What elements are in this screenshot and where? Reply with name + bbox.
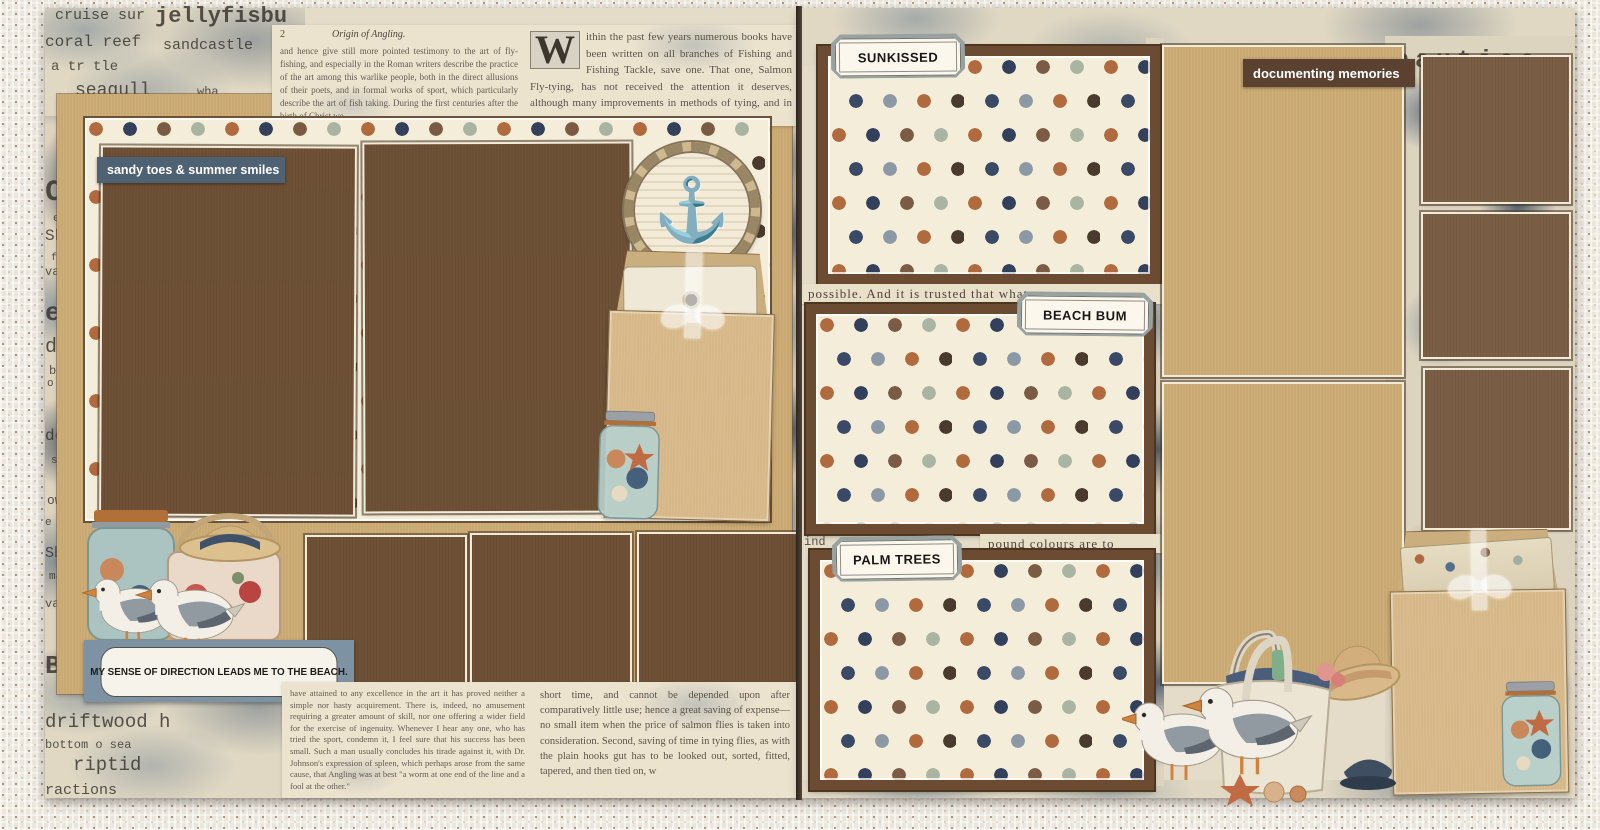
book-column-right: W ithin the past few years numerous book… [530,29,792,128]
beach-bum-plaque: BEACH BUM [1017,291,1153,336]
shell-jar-icon [591,408,666,526]
photo-square [1423,368,1571,530]
book-page-bottom: have attained to any excellence in the a… [282,682,799,798]
book-page-top: 2 Origin of Angling. and hence give stil… [272,25,799,126]
navy-hat-icon [1340,759,1396,790]
book-paragraph: have attained to any excellence in the a… [290,688,525,792]
book-heading: Origin of Angling. [332,29,405,40]
tan-journaling-block-top [1162,45,1404,377]
photo-square [637,532,801,696]
polka-dot-paper [816,314,1144,524]
palm-trees-label: PALM TREES [836,539,959,580]
scatter-word: driftwood h [45,713,170,732]
dot-panel-palm-trees [810,550,1154,790]
photo-square [1421,212,1571,359]
beach-bum-label: BEACH BUM [1021,295,1149,334]
beach-bum-label-text: BEACH BUM [1043,307,1127,323]
ribbon-knot [687,310,700,323]
ribbon-bow-icon [1447,569,1512,610]
photo-square [470,533,632,697]
scatter-word: cruise sur [55,8,145,23]
shell-jar-icon [1495,678,1567,791]
direction-sentiment-text: MY SENSE OF DIRECTION LEADS ME TO THE BE… [90,666,347,678]
book-paragraph: short time, and cannot be depended upon … [540,688,790,779]
scatter-word: bottom o sea [45,739,131,751]
kraft-envelope-left [604,250,777,522]
book-paragraph: ithin the past few years numerous books … [530,29,792,128]
book-strip-text: possible. And it is trusted that what [808,286,1028,302]
sunkissed-plaque: SUNKISSED [831,33,965,78]
ribbon-knot [1474,580,1487,593]
page-seam [796,6,802,800]
ribbon-bow-icon [660,299,725,341]
documenting-memories-label: documenting memories [1243,59,1415,87]
beach-cluster-left [78,500,306,652]
scatter-word: jellyfisbu [155,6,287,28]
photo-square [1421,55,1571,204]
scatter-word: ractions [45,783,117,798]
scatter-word: riptid [73,756,141,775]
beach-cluster-right [1122,620,1404,806]
anchor-icon: ⚓ [653,174,730,247]
sunkissed-label: SUNKISSED [835,37,961,76]
scrapbook-page-right: jellyfish sun nautica clownfish wharf SU… [800,8,1575,798]
documenting-memories-label-text: documenting memories [1253,66,1400,81]
scatter-word: sandcastle [163,38,253,53]
dot-panel-beach-bum [806,304,1154,534]
palm-trees-plaque: PALM TREES [832,535,963,582]
kraft-envelope-right [1389,528,1570,795]
palm-trees-label-text: PALM TREES [853,551,941,567]
scrapbook-page-left: cruise sur jellyfisbu coral reef sandcas… [45,8,800,798]
photo-mat-left [99,145,357,516]
polka-dot-paper [820,560,1144,780]
scatter-word: ind [804,536,826,548]
sunkissed-label-text: SUNKISSED [858,49,938,65]
sandy-toes-label: sandy toes & summer smiles [97,157,285,183]
sandy-toes-label-text: sandy toes & summer smiles [107,163,279,177]
scatter-word: coral reef [45,34,141,50]
polka-dot-paper [828,56,1150,274]
dot-panel-sunkissed [818,46,1160,284]
book-page-number: 2 [280,29,285,40]
scatter-word: a tr tle [51,60,118,74]
book-paragraph: and hence give still more pointed testim… [280,45,518,123]
